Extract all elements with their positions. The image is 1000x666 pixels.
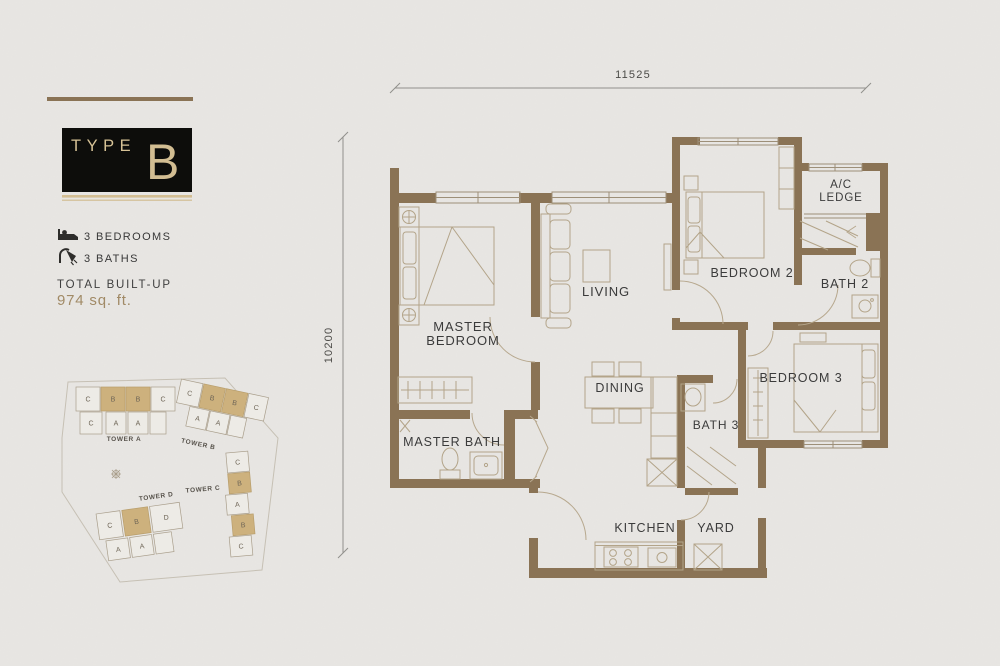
- builtup-label: TOTAL BUILT-UP: [57, 279, 172, 291]
- room-label: BATH 2: [821, 277, 869, 291]
- site-unit-letter: B: [136, 397, 141, 404]
- site-unit-letter: C: [107, 522, 113, 530]
- room-label: BEDROOM: [426, 333, 499, 348]
- site-unit-letter: C: [160, 397, 165, 404]
- gold-underline-thin: [62, 200, 192, 201]
- site-unit-letter: B: [237, 480, 243, 487]
- floorplan-canvas: TYPE B 3 BEDROOMS 3 BATHS TOTAL BUILT-UP…: [0, 0, 1000, 666]
- room-label: LEDGE: [819, 192, 863, 204]
- floorplan-page: TYPE B 3 BEDROOMS 3 BATHS TOTAL BUILT-UP…: [0, 0, 1000, 666]
- room-label: LIVING: [582, 284, 630, 299]
- site-unit-letter: C: [235, 459, 241, 466]
- site-unit-letter: A: [235, 502, 241, 509]
- type-label: TYPE: [71, 137, 136, 155]
- room-label: YARD: [697, 521, 734, 535]
- site-unit-letter: D: [163, 514, 169, 522]
- room-label: MASTER: [433, 319, 493, 334]
- fact-baths: 3 BATHS: [84, 253, 139, 265]
- brown-rule: [47, 97, 193, 101]
- room-label: BEDROOM 3: [759, 371, 842, 385]
- room-label: DINING: [595, 381, 644, 395]
- gold-underline-thick: [62, 195, 192, 198]
- dimension-top-label: 11525: [615, 69, 651, 81]
- site-unit-letter: C: [85, 397, 90, 404]
- site-unit-cell: [150, 412, 166, 434]
- site-unit-letter: A: [136, 421, 141, 428]
- room-label: BEDROOM 2: [710, 266, 793, 280]
- site-unit-letter: C: [238, 543, 244, 550]
- site-unit-letter: A: [114, 421, 119, 428]
- site-unit-cell: [153, 532, 174, 554]
- room-label: BATH 3: [693, 418, 740, 432]
- room-label: KITCHEN: [614, 521, 675, 535]
- room-label: MASTER BATH: [403, 435, 501, 449]
- tower-label: TOWER A: [107, 436, 142, 443]
- builtup-value: 974 sq. ft.: [57, 292, 132, 309]
- dimension-left-label: 10200: [323, 327, 335, 364]
- type-letter: B: [146, 134, 179, 190]
- site-unit-letter: B: [241, 522, 247, 529]
- room-label: A/C: [830, 179, 852, 191]
- site-landmark-icon: [111, 469, 121, 479]
- site-unit-letter: B: [111, 397, 116, 404]
- fact-bedrooms: 3 BEDROOMS: [84, 231, 171, 243]
- site-unit-letter: C: [88, 421, 93, 428]
